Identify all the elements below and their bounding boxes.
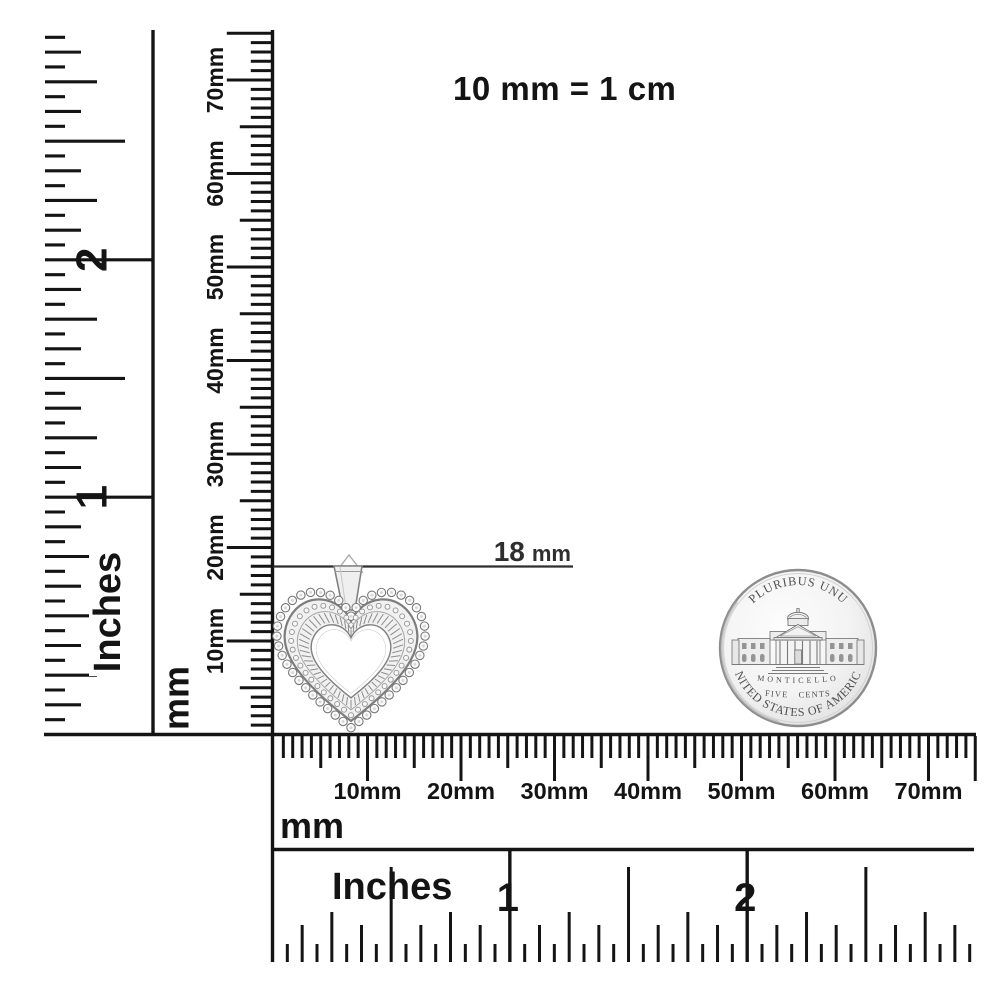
bottom-inches-ruler: 12Inches <box>287 851 969 962</box>
round-diamond <box>355 707 360 712</box>
round-diamond <box>303 670 308 675</box>
inches-unit-label: Inches <box>87 552 129 672</box>
mm-number-label: 10mm <box>334 778 402 804</box>
halo-diamond-facet <box>365 714 368 717</box>
halo-diamond-facet <box>402 679 405 682</box>
mm-number-label: 40mm <box>202 327 228 393</box>
round-diamond <box>407 647 412 652</box>
halo-diamond-facet <box>279 615 282 618</box>
halo-diamond-facet <box>275 635 278 638</box>
mm-number-label: 40mm <box>614 778 682 804</box>
halo-diamond-facet <box>414 663 417 666</box>
round-diamond <box>289 638 294 643</box>
mm-number-label: 30mm <box>202 421 228 487</box>
halo-diamond-facet <box>423 625 426 628</box>
mm-unit-label: mm <box>156 666 197 730</box>
round-diamond <box>388 677 393 682</box>
halo-diamond-facet <box>373 707 376 710</box>
round-diamond <box>362 702 367 707</box>
nickel-coin-image: E PLURIBUS UNUM <box>718 568 878 728</box>
round-diamond <box>369 696 374 701</box>
round-diamond <box>408 638 413 643</box>
halo-diamond-facet <box>281 654 284 657</box>
halo-diamond-facet <box>304 686 307 689</box>
rulers-overlay: 12Inches10mm20mm30mm40mm50mm60mm70mmmm10… <box>0 0 1000 1000</box>
round-diamond <box>297 614 302 619</box>
halo-diamond-facet <box>329 594 332 597</box>
inch-number-label: 2 <box>734 876 756 920</box>
mm-number-label: 30mm <box>521 778 589 804</box>
ruler-frame-lines <box>44 30 976 962</box>
halo-diamond-facet <box>311 693 314 696</box>
mm-number-label: 50mm <box>708 778 776 804</box>
measurement-text: 18mm <box>494 536 571 567</box>
halo-diamond-facet <box>285 663 288 666</box>
halo-diamond-facet <box>326 707 329 710</box>
measurement-value: 18 <box>494 536 525 567</box>
round-diamond <box>376 690 381 695</box>
halo-diamond-facet <box>424 635 427 638</box>
round-diamond <box>394 670 399 675</box>
halo-diamond-facet <box>388 693 391 696</box>
halo-diamond-facet <box>408 671 411 674</box>
halo-diamond-facet <box>355 606 358 609</box>
halo-diamond-facet <box>309 591 312 594</box>
round-diamond <box>298 663 303 668</box>
round-diamond <box>404 655 409 660</box>
left-pavilion <box>732 640 739 665</box>
round-diamond <box>330 605 335 610</box>
round-diamond <box>405 621 410 626</box>
inch-number-label: 1 <box>497 876 519 920</box>
halo-diamond-facet <box>418 654 421 657</box>
bottom-mm-ruler: 10mm20mm30mm40mm50mm60mm70mmmm <box>280 736 975 846</box>
halo-diamond-facet <box>277 644 280 647</box>
round-diamond <box>382 684 387 689</box>
halo-diamond-facet <box>299 594 302 597</box>
round-diamond <box>335 702 340 707</box>
round-diamond <box>376 603 381 608</box>
mm-number-label: 70mm <box>895 778 963 804</box>
halo-diamond-facet <box>342 720 345 723</box>
halo-diamond-facet <box>362 599 365 602</box>
halo-diamond-facet <box>337 599 340 602</box>
halo-diamond-facet <box>291 599 294 602</box>
baguette-separator <box>353 625 354 632</box>
entry-door <box>795 650 802 664</box>
halo-diamond-facet <box>344 606 347 609</box>
halo-diamond-facet <box>319 591 322 594</box>
halo-diamond-facet <box>380 700 383 703</box>
halo-diamond-facet <box>395 686 398 689</box>
inch-number-label: 2 <box>68 248 117 272</box>
inches-unit-label: Inches <box>332 866 452 908</box>
round-diamond <box>304 608 309 613</box>
round-diamond <box>321 690 326 695</box>
mm-number-label: 70mm <box>202 47 228 113</box>
round-diamond <box>399 663 404 668</box>
round-diamond <box>360 609 365 614</box>
baguette-separator <box>348 625 349 632</box>
round-diamond <box>292 621 297 626</box>
round-diamond <box>342 707 347 712</box>
round-diamond <box>400 614 405 619</box>
mm-unit-label: mm <box>280 805 344 846</box>
round-diamond <box>289 630 294 635</box>
measurement-unit: mm <box>532 541 571 566</box>
round-diamond <box>321 603 326 608</box>
halo-diamond-facet <box>415 606 418 609</box>
mm-number-label: 20mm <box>202 514 228 580</box>
round-diamond <box>312 604 317 609</box>
halo-diamond-facet <box>420 615 423 618</box>
mm-number-label: 60mm <box>801 778 869 804</box>
halo-diamond-facet <box>334 714 337 717</box>
round-diamond <box>348 713 353 718</box>
mm-number-label: 10mm <box>202 608 228 674</box>
mm-number-label: 20mm <box>427 778 495 804</box>
round-diamond <box>385 604 390 609</box>
halo-diamond-facet <box>350 615 353 618</box>
halo-diamond-facet <box>380 591 383 594</box>
halo-diamond-facet <box>276 625 279 628</box>
mm-number-label: 50mm <box>202 234 228 300</box>
halo-diamond-facet <box>349 726 352 729</box>
halo-diamond-facet <box>390 591 393 594</box>
round-diamond <box>290 647 295 652</box>
halo-diamond-facet <box>370 594 373 597</box>
round-diamond <box>293 655 298 660</box>
round-diamond <box>393 608 398 613</box>
halo-diamond-facet <box>291 671 294 674</box>
mm-number-label: 60mm <box>202 140 228 206</box>
halo-diamond-facet <box>408 599 411 602</box>
inch-number-label: 1 <box>68 485 117 509</box>
halo-diamond-facet <box>319 700 322 703</box>
round-diamond <box>408 630 413 635</box>
round-diamond <box>315 684 320 689</box>
round-diamond <box>328 696 333 701</box>
round-diamond <box>309 677 314 682</box>
halo-diamond-facet <box>297 679 300 682</box>
dome-finial <box>797 609 799 613</box>
round-diamond <box>337 609 342 614</box>
halo-diamond-facet <box>357 720 360 723</box>
halo-diamond-facet <box>400 594 403 597</box>
left-inches-ruler: 12Inches <box>45 37 153 719</box>
right-pavilion <box>857 640 864 665</box>
left-mm-ruler: 10mm20mm30mm40mm50mm60mm70mmmm <box>156 33 272 730</box>
heart-pendant-image <box>270 540 434 740</box>
round-diamond <box>367 605 372 610</box>
halo-diamond-facet <box>422 644 425 647</box>
halo-diamond-facet <box>284 606 287 609</box>
